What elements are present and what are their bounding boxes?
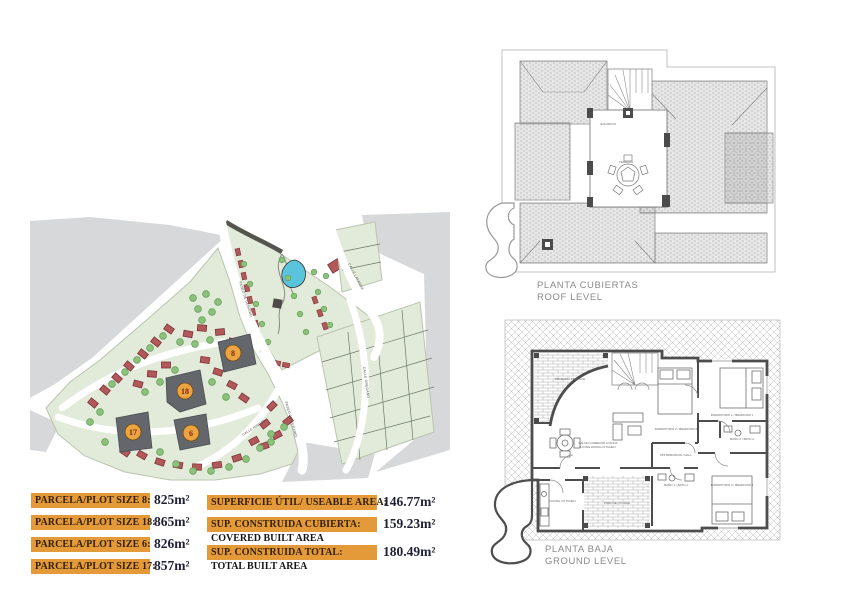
kitchen-counter <box>540 484 549 526</box>
community-plaza <box>272 298 282 308</box>
svg-text:BAÑO 1 / BATH 1: BAÑO 1 / BATH 1 <box>664 482 688 487</box>
useable-area-label: SUPERFICIE ÚTIL/ USEABLE AREA: <box>207 495 377 510</box>
svg-text:DISTRIBUIDOR / HALL: DISTRIBUIDOR / HALL <box>660 453 692 457</box>
ground-stairs <box>612 353 658 390</box>
svg-text:LIVING DINING KITCHEN: LIVING DINING KITCHEN <box>580 445 615 449</box>
roof-plan-title-es: PLANTA CUBIERTAS <box>537 280 638 291</box>
plot-size-label: PARCELA/PLOT SIZE 6: <box>31 537 150 552</box>
covered-built-value: 159.23m² <box>383 516 435 532</box>
svg-text:DORMITORIO 2 / BEDROOM 2: DORMITORIO 2 / BEDROOM 2 <box>655 427 698 431</box>
terrace-label-1: SOLARIUM <box>600 122 616 126</box>
plot-size-value: 825m² <box>154 492 190 508</box>
svg-text:PORCHE / PORCH: PORCHE / PORCH <box>604 501 630 505</box>
useable-area-value: 146.77m² <box>383 494 435 510</box>
svg-text:18: 18 <box>181 387 189 396</box>
plot-size-label: PARCELA/PLOT SIZE 17: <box>31 559 150 574</box>
total-built-sublabel: TOTAL BUILT AREA <box>211 561 307 573</box>
total-built-label: SUP. CONSTRUIDA TOTAL: <box>207 545 377 560</box>
roof-plan: SOLARIUM TERRAZA PLANTA CUBIERTAS ROOF L… <box>480 45 810 310</box>
ground-plan-title-en: GROUND LEVEL <box>545 556 627 567</box>
plot-badge-8: 8 <box>225 345 241 361</box>
svg-text:8: 8 <box>231 349 235 358</box>
ground-garden-curve <box>492 480 532 563</box>
terrace-label-2: TERRAZA <box>619 160 633 164</box>
table-row: SUPERFICIE ÚTIL/ USEABLE AREA: 146.77m² <box>207 495 451 511</box>
svg-text:DORMITORIO 1 / BEDROOM 1: DORMITORIO 1 / BEDROOM 1 <box>711 413 754 417</box>
svg-text:BAÑO 2 / BATH 2: BAÑO 2 / BATH 2 <box>730 436 754 441</box>
bed-2 <box>658 368 692 414</box>
svg-text:17: 17 <box>129 428 137 437</box>
svg-text:COCINA / KITCHEN: COCINA / KITCHEN <box>548 499 575 503</box>
table-row: SUP. CONSTRUIDA TOTAL: 180.49m² <box>207 545 451 561</box>
table-row: SUP. CONSTRUIDA CUBIERTA: 159.23m² <box>207 517 451 533</box>
brochure-page: 8 18 6 17 PASEO DE GERANIO CALLE LAVANDA… <box>0 0 850 614</box>
plot-size-value: 865m² <box>154 514 190 530</box>
site-plan-map: 8 18 6 17 PASEO DE GERANIO CALLE LAVANDA… <box>30 212 450 487</box>
ground-plan-title-es: PLANTA BAJA <box>545 544 614 555</box>
chimney <box>623 108 633 118</box>
plot-size-label: PARCELA/PLOT SIZE 18: <box>31 515 150 530</box>
covered-built-sublabel: COVERED BUILT AREA <box>211 533 324 545</box>
ground-plan: TERRAZA / TERRACE SALON COMEDOR COCINA L… <box>480 318 810 590</box>
plot-size-value: 857m² <box>154 558 190 574</box>
plot-size-value: 826m² <box>154 536 190 552</box>
covered-built-label: SUP. CONSTRUIDA CUBIERTA: <box>207 517 377 532</box>
roof-terrace: SOLARIUM TERRAZA <box>587 108 670 207</box>
roof-plan-title-en: ROOF LEVEL <box>537 292 603 303</box>
plot-badge-6: 6 <box>183 425 199 441</box>
plot-size-label: PARCELA/PLOT SIZE 8: <box>31 493 150 508</box>
svg-text:TERRAZA / TERRACE: TERRAZA / TERRACE <box>555 377 586 381</box>
area-table: PARCELA/PLOT SIZE 8: 825m² PARCELA/PLOT … <box>31 491 451 583</box>
plot-badge-17: 17 <box>125 424 141 440</box>
svg-text:6: 6 <box>189 429 193 438</box>
roof-stairs <box>608 69 652 113</box>
roof-garden-curve <box>486 203 517 277</box>
total-built-value: 180.49m² <box>383 544 435 560</box>
plot-badge-18: 18 <box>177 383 193 399</box>
svg-text:DORMITORIO 3 / BEDROOM 3: DORMITORIO 3 / BEDROOM 3 <box>711 483 754 487</box>
bed-1 <box>720 368 763 408</box>
